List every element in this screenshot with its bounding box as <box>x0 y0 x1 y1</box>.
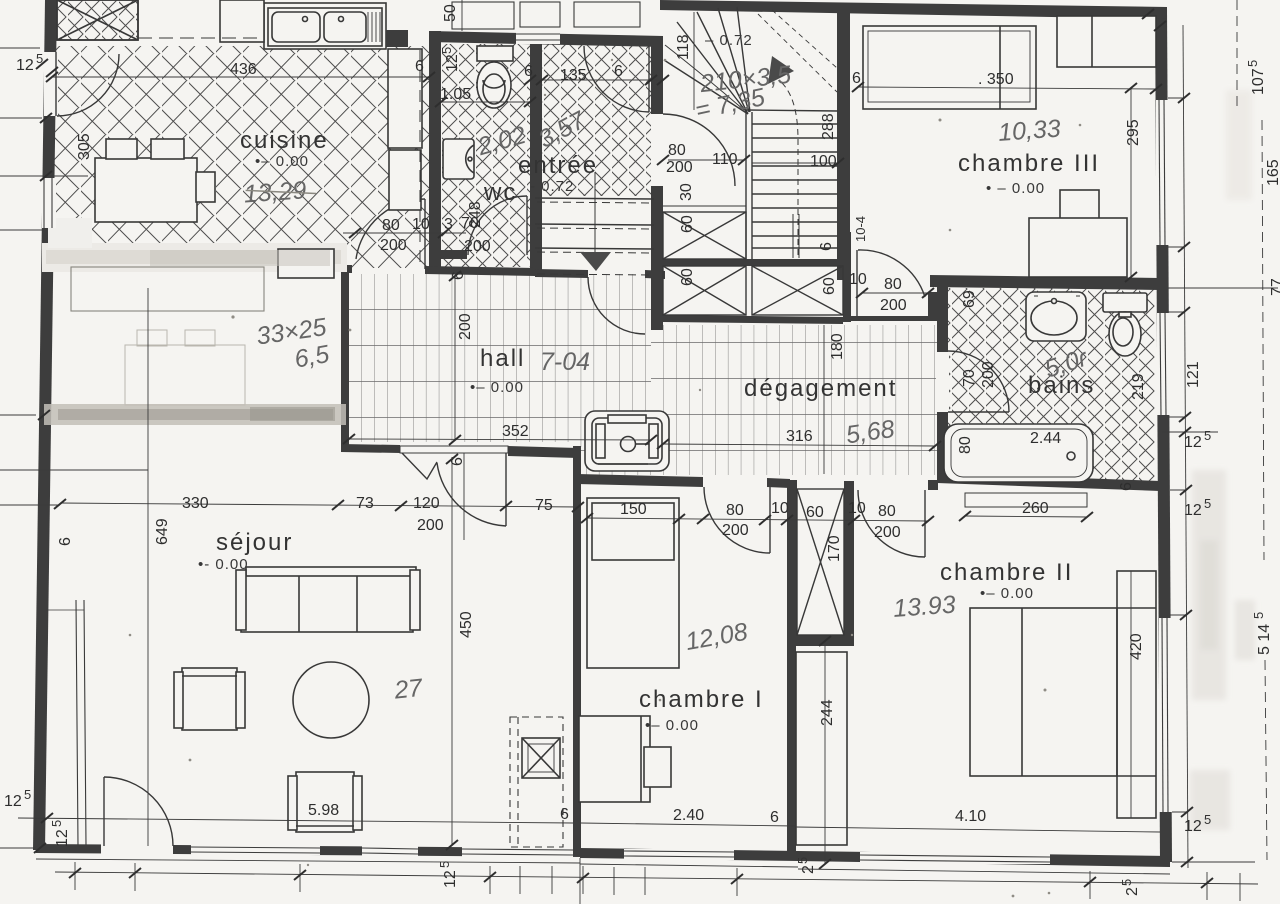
svg-text:•- 0.00: •- 0.00 <box>198 556 249 573</box>
svg-text:200: 200 <box>417 517 444 534</box>
svg-text:6: 6 <box>1118 482 1135 491</box>
svg-text:50: 50 <box>442 4 459 22</box>
svg-text:420: 420 <box>1128 633 1145 660</box>
svg-text:2.40: 2.40 <box>673 807 704 824</box>
svg-text:•– 0.00: •– 0.00 <box>980 585 1034 602</box>
svg-text:wc: wc <box>483 179 517 206</box>
svg-text:200: 200 <box>880 297 907 314</box>
svg-text:30: 30 <box>678 183 695 201</box>
svg-text:5: 5 <box>795 857 810 864</box>
svg-text:80: 80 <box>884 276 902 293</box>
svg-text:60: 60 <box>806 504 824 521</box>
svg-text:6: 6 <box>449 457 466 466</box>
svg-text:75: 75 <box>535 497 553 514</box>
svg-text:200: 200 <box>380 237 407 254</box>
svg-text:• – 0.00: • – 0.00 <box>986 180 1045 197</box>
svg-text:5: 5 <box>36 51 43 66</box>
svg-text:7-04: 7-04 <box>540 348 590 376</box>
svg-text:77: 77 <box>1269 278 1280 296</box>
svg-text:6: 6 <box>57 537 74 546</box>
svg-text:séjour: séjour <box>216 529 293 556</box>
svg-text:288: 288 <box>820 113 837 140</box>
svg-text:12: 12 <box>444 54 461 72</box>
svg-text:- 0.72: - 0.72 <box>530 178 574 195</box>
svg-text:5: 5 <box>437 861 452 868</box>
svg-text:6: 6 <box>770 809 779 826</box>
svg-text:200: 200 <box>666 159 693 176</box>
svg-text:316: 316 <box>786 428 813 445</box>
svg-text:60: 60 <box>679 268 696 286</box>
svg-text:3: 3 <box>444 216 453 233</box>
svg-text:hall: hall <box>480 345 525 372</box>
svg-text:6: 6 <box>524 63 533 80</box>
svg-text:60: 60 <box>679 215 696 233</box>
svg-text:5 14: 5 14 <box>1256 624 1273 655</box>
svg-text:1.05: 1.05 <box>440 86 471 103</box>
svg-text:118: 118 <box>675 34 692 60</box>
svg-text:121: 121 <box>1185 361 1202 388</box>
svg-text:80: 80 <box>726 502 744 519</box>
svg-text:12: 12 <box>1184 502 1202 519</box>
svg-text:6,5: 6,5 <box>292 340 331 374</box>
svg-text:200: 200 <box>874 524 901 541</box>
svg-text:200: 200 <box>980 361 997 388</box>
svg-text:5: 5 <box>439 47 454 54</box>
svg-text:10: 10 <box>412 216 430 233</box>
svg-text:12: 12 <box>1184 818 1202 835</box>
svg-text:dégagement: dégagement <box>744 375 897 402</box>
svg-text:200: 200 <box>722 522 749 539</box>
svg-text:10,33: 10,33 <box>997 115 1061 147</box>
svg-text:10-4: 10-4 <box>853 216 868 242</box>
svg-text:– 0.72: – 0.72 <box>705 32 753 49</box>
svg-text:6: 6 <box>450 271 467 280</box>
svg-text:60: 60 <box>821 277 838 295</box>
svg-text:2: 2 <box>1124 887 1141 896</box>
svg-text:70: 70 <box>961 369 978 387</box>
svg-text:165: 165 <box>1265 159 1280 186</box>
svg-text:5.98: 5.98 <box>308 802 339 819</box>
svg-text:12: 12 <box>442 870 459 888</box>
svg-text:248: 248 <box>467 201 484 228</box>
svg-text:10: 10 <box>771 500 789 517</box>
svg-text:12: 12 <box>4 793 22 810</box>
svg-text:2: 2 <box>800 865 817 874</box>
svg-text:5: 5 <box>1204 812 1211 827</box>
svg-text:6: 6 <box>852 70 861 87</box>
svg-text:5: 5 <box>1251 612 1266 619</box>
svg-text:5: 5 <box>1119 879 1134 886</box>
svg-text:10: 10 <box>848 500 866 517</box>
svg-text:4.10: 4.10 <box>955 808 986 825</box>
svg-text:73: 73 <box>356 495 374 512</box>
svg-text:12: 12 <box>1184 434 1202 451</box>
svg-text:5: 5 <box>1204 428 1211 443</box>
svg-text:450: 450 <box>458 611 475 638</box>
svg-text:80: 80 <box>382 217 400 234</box>
svg-text:244: 244 <box>819 699 836 726</box>
svg-text:80: 80 <box>957 436 974 454</box>
svg-text:5: 5 <box>1204 496 1211 511</box>
svg-text:•– 0.00: •– 0.00 <box>255 153 309 170</box>
svg-text:entrée: entrée <box>518 152 598 179</box>
svg-text:13.93: 13.93 <box>892 591 956 623</box>
svg-text:cuisine: cuisine <box>240 127 329 154</box>
svg-text:219: 219 <box>1130 373 1147 400</box>
svg-text:330: 330 <box>182 495 209 512</box>
svg-text:260: 260 <box>1022 500 1049 517</box>
svg-text:6: 6 <box>415 58 424 75</box>
svg-text:110: 110 <box>712 151 738 168</box>
svg-text:80: 80 <box>878 503 896 520</box>
svg-text:100: 100 <box>810 153 837 170</box>
svg-text:135: 135 <box>560 67 587 84</box>
svg-text:6: 6 <box>614 63 623 80</box>
svg-text:chambre II: chambre II <box>940 559 1073 586</box>
svg-text:150: 150 <box>620 501 647 518</box>
svg-text:180: 180 <box>829 333 846 360</box>
svg-text:69: 69 <box>961 290 978 308</box>
svg-text:•– 0.00: •– 0.00 <box>645 717 699 734</box>
svg-text:. 350: . 350 <box>978 71 1014 88</box>
svg-text:649: 649 <box>154 518 171 545</box>
svg-text:6: 6 <box>818 242 835 251</box>
svg-text:6: 6 <box>560 806 569 823</box>
svg-text:12: 12 <box>54 829 71 847</box>
svg-text:200: 200 <box>457 313 474 340</box>
svg-text:170: 170 <box>826 535 843 562</box>
svg-text:200: 200 <box>464 238 491 255</box>
svg-text:120: 120 <box>413 495 440 512</box>
svg-text:305: 305 <box>76 133 93 160</box>
svg-text:chambre I: chambre I <box>639 686 764 713</box>
svg-text:5: 5 <box>24 787 31 802</box>
svg-text:436: 436 <box>230 61 257 78</box>
svg-text:107: 107 <box>1250 68 1267 95</box>
svg-text:•– 0.00: •– 0.00 <box>470 379 524 396</box>
svg-text:chambre III: chambre III <box>958 150 1100 177</box>
svg-text:295: 295 <box>1125 119 1142 146</box>
svg-text:2.44: 2.44 <box>1030 430 1061 447</box>
svg-text:10: 10 <box>849 271 867 288</box>
svg-text:27: 27 <box>392 674 425 705</box>
svg-text:12: 12 <box>16 57 34 74</box>
svg-text:80: 80 <box>668 142 686 159</box>
svg-text:352: 352 <box>502 423 529 440</box>
svg-text:5: 5 <box>49 820 64 827</box>
svg-text:5: 5 <box>1245 60 1260 67</box>
